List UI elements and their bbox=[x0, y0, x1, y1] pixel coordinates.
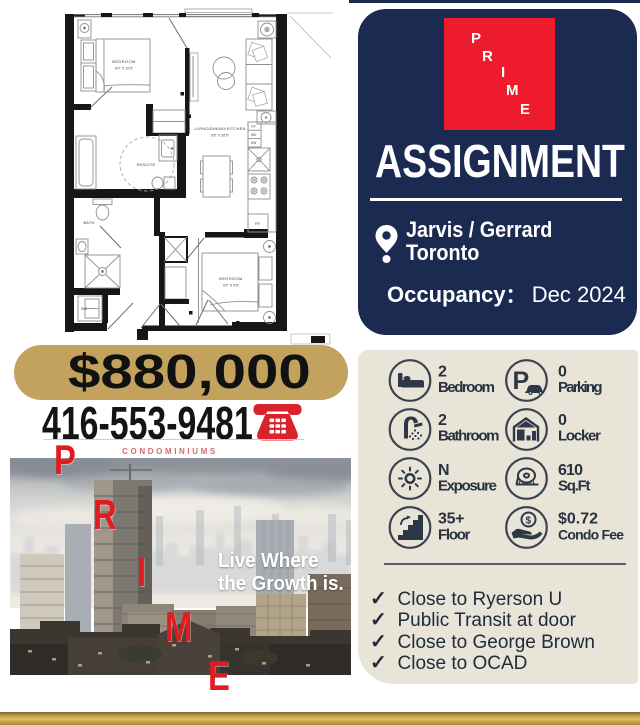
svg-text:0: 0 bbox=[558, 412, 567, 429]
svg-text:LIVING/DINING/KITCHEN: LIVING/DINING/KITCHEN bbox=[194, 126, 245, 131]
svg-text:9'0" X 10'0": 9'0" X 10'0" bbox=[115, 67, 134, 71]
svg-text:Parking: Parking bbox=[558, 379, 603, 396]
svg-text:2: 2 bbox=[438, 412, 447, 429]
svg-text:Bedroom: Bedroom bbox=[438, 379, 495, 396]
svg-text:OV: OV bbox=[251, 125, 256, 129]
svg-text:2: 2 bbox=[438, 364, 447, 381]
svg-text:Condo Fee: Condo Fee bbox=[558, 527, 624, 543]
svg-text:0: 0 bbox=[558, 364, 567, 381]
svg-text:$: $ bbox=[526, 516, 532, 527]
svg-text:DW: DW bbox=[251, 141, 256, 145]
svg-text:Locker: Locker bbox=[558, 428, 601, 445]
svg-text:ENSUITE: ENSUITE bbox=[137, 163, 156, 167]
svg-text:BEDROOM: BEDROOM bbox=[219, 276, 242, 281]
svg-text:WD: WD bbox=[251, 133, 257, 137]
svg-text:9'2" X 9'5": 9'2" X 9'5" bbox=[223, 284, 240, 288]
svg-text:FR: FR bbox=[255, 222, 260, 226]
svg-text:W/D: W/D bbox=[81, 307, 88, 311]
svg-text:BEDROOM: BEDROOM bbox=[112, 59, 135, 64]
svg-text:Floor: Floor bbox=[438, 527, 471, 544]
svg-text:N: N bbox=[438, 462, 450, 479]
svg-text:9'5" X 20'5": 9'5" X 20'5" bbox=[211, 134, 230, 138]
svg-text:610: 610 bbox=[558, 462, 583, 479]
svg-text:Exposure: Exposure bbox=[438, 478, 497, 495]
svg-text:$0.72: $0.72 bbox=[558, 511, 598, 528]
svg-text:Sq.Ft: Sq.Ft bbox=[558, 478, 591, 495]
svg-text:Bathroom: Bathroom bbox=[438, 428, 500, 445]
svg-text:BATH: BATH bbox=[83, 221, 94, 225]
svg-text:35+: 35+ bbox=[438, 511, 465, 528]
